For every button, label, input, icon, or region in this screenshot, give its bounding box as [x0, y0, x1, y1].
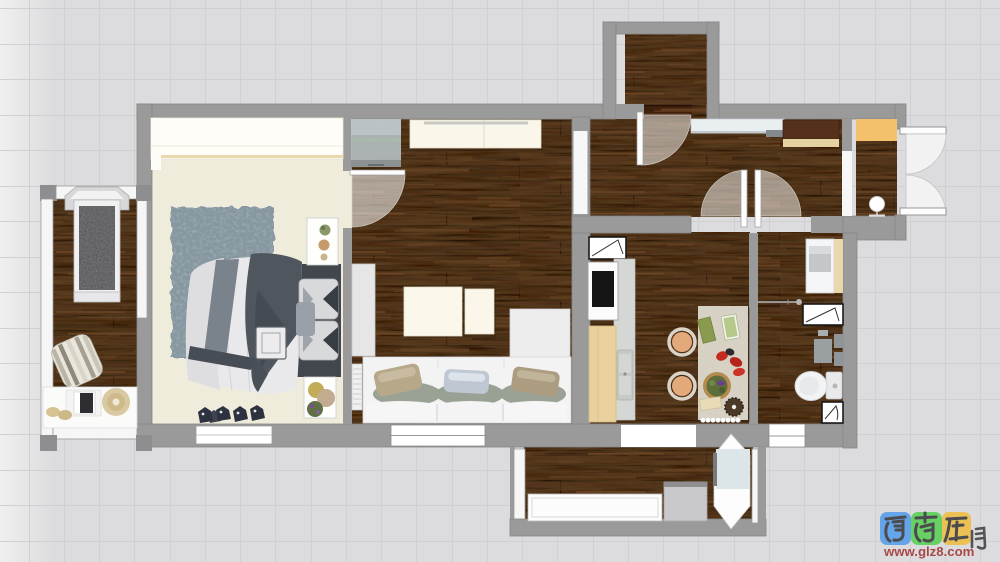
- svg-text:www.glz8.com: www.glz8.com: [883, 544, 974, 559]
